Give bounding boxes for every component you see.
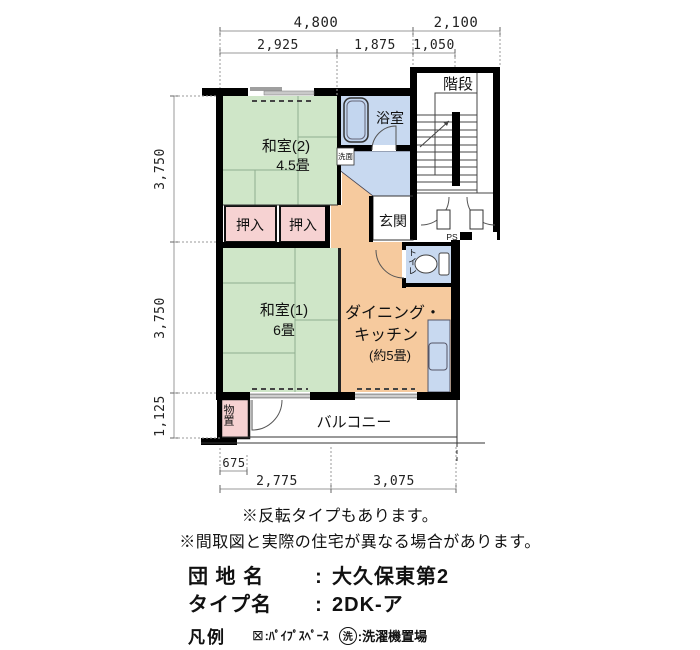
type-name-colon: :	[306, 594, 332, 617]
label-balcony: バルコニー	[317, 414, 392, 431]
label-washitsu2: 和室(2)	[262, 138, 310, 155]
estate-name-value: 大久保東第2	[332, 560, 449, 589]
label-yokushitsu: 浴室	[376, 110, 404, 126]
dim-1050: 1,050	[413, 38, 455, 53]
wall-stub-bottom-left	[201, 438, 237, 445]
dim-2100: 2,100	[434, 15, 479, 31]
opening-stair-door-right	[472, 232, 497, 240]
label-dk-line2: キッチン	[354, 327, 418, 344]
note-reversed-type: ※反転タイプもあります。	[0, 502, 680, 526]
opening-bottom-window-1	[250, 392, 310, 400]
dim-1125: 1,125	[153, 395, 168, 437]
dim-2925: 2,925	[257, 38, 299, 53]
label-washitsu1: 和室(1)	[260, 302, 308, 319]
opening-bath-door	[372, 145, 396, 151]
pipe-space-icon: ⊠	[252, 627, 264, 644]
estate-name-row: 団 地 名 : 大久保東第2	[188, 560, 449, 589]
label-washitsu1-size: 6畳	[273, 322, 295, 338]
estate-name-colon: :	[306, 566, 332, 589]
label-toire: トイレ	[407, 248, 417, 275]
legend-row: 凡例 ⊠ :ﾊﾟｲﾌﾟｽﾍﾟｰｽ 洗 :洗濯機置場	[188, 623, 427, 648]
door-leaf-left	[437, 210, 450, 229]
wall-washitsu1-right	[338, 248, 341, 392]
dim-3750-upper: 3,750	[153, 148, 168, 190]
label-monooki: 物置	[222, 403, 235, 426]
dim-3750-lower: 3,750	[153, 297, 168, 339]
toilet-tank-icon	[439, 253, 449, 275]
label-washitsu2-size: 4.5畳	[276, 157, 309, 173]
dim-3075: 3,075	[373, 474, 415, 489]
dim-ext-left	[174, 96, 220, 438]
wall-stairs-left	[410, 67, 417, 240]
washing-machine-label: :洗濯機置場	[358, 626, 427, 645]
wall-stairs-top	[410, 67, 500, 73]
door-leaf-right	[470, 210, 483, 229]
floorplan-drawing: 階段 浴室 洗面 和室(2) 4.5畳 押入 押入 玄関 トイレ 和室(1) 6…	[0, 0, 700, 498]
label-dk-line1: ダイニング・	[345, 304, 441, 322]
pipe-space-label: :ﾊﾟｲﾌﾟｽﾍﾟｰｽ	[265, 627, 329, 644]
stair-center-wall	[452, 112, 460, 186]
type-name-label: タイプ名	[188, 588, 306, 617]
label-oshiire-2: 押入	[289, 217, 317, 233]
type-name-row: タイプ名 : 2DK-ア	[188, 588, 404, 617]
label-genkan: 玄関	[379, 213, 407, 229]
opening-bottom-window-2	[355, 392, 417, 400]
wall-stairs-right	[493, 67, 500, 240]
dim-675: 675	[222, 456, 245, 470]
dim-1875: 1,875	[354, 38, 396, 53]
label-senmen: 洗面	[338, 151, 353, 161]
wall-closet-right	[325, 205, 330, 242]
window-top-pane-1	[250, 87, 282, 91]
legend-title: 凡例	[188, 623, 226, 648]
dim-2775: 2,775	[256, 474, 298, 489]
opening-toilet-door	[402, 250, 406, 278]
wall-toilet-top	[402, 242, 453, 246]
wall-dk-right	[451, 240, 460, 393]
note-disclaimer: ※間取図と実際の住宅が異なる場合があります。	[20, 528, 700, 552]
floorplan-page: 階段 浴室 洗面 和室(2) 4.5畳 押入 押入 玄関 トイレ 和室(1) 6…	[0, 0, 700, 650]
stair-treads	[417, 115, 477, 190]
dim-4800: 4,800	[294, 15, 339, 31]
window-top-pane-2	[264, 91, 314, 95]
type-name-value: 2DK-ア	[332, 588, 404, 617]
label-dk-line3: (約5畳)	[369, 348, 411, 363]
washing-machine-icon: 洗	[339, 627, 357, 645]
wall-middle	[216, 242, 330, 248]
label-oshiire-1: 押入	[236, 217, 264, 233]
toilet-bowl-icon	[415, 255, 437, 273]
door-balcony	[252, 400, 282, 430]
estate-name-label: 団 地 名	[188, 560, 306, 589]
wall-genkan-left	[369, 196, 373, 242]
label-kaidan: 階段	[443, 76, 473, 93]
wall-toilet-bottom	[402, 283, 451, 287]
label-ps: PS	[446, 232, 458, 242]
